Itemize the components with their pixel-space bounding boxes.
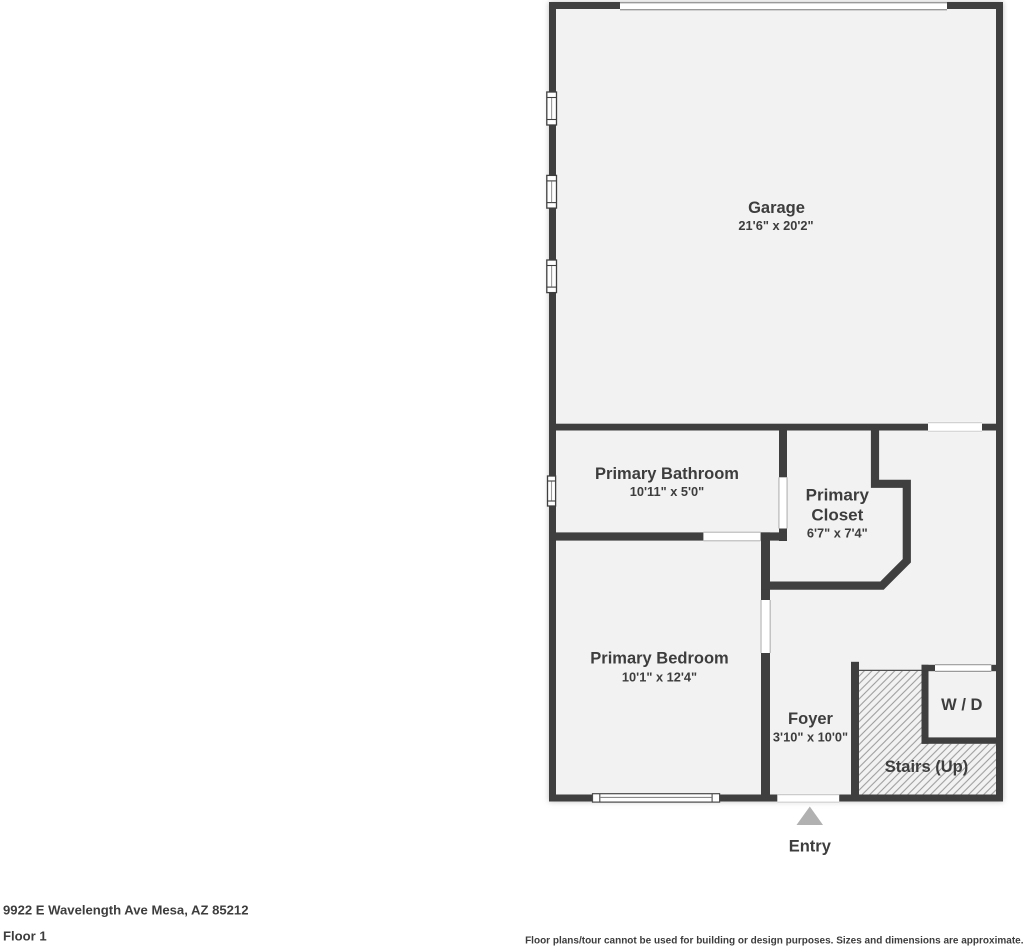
svg-text:Primary Bedroom: Primary Bedroom bbox=[590, 649, 728, 667]
svg-text:9922 E Wavelength Ave Mesa, AZ: 9922 E Wavelength Ave Mesa, AZ 85212 bbox=[3, 903, 249, 918]
svg-text:10'1" x 12'4": 10'1" x 12'4" bbox=[622, 670, 697, 685]
svg-text:21'6" x 20'2": 21'6" x 20'2" bbox=[738, 218, 813, 233]
svg-text:Closet: Closet bbox=[811, 506, 863, 525]
svg-text:W / D: W / D bbox=[941, 696, 982, 714]
svg-text:Foyer: Foyer bbox=[788, 710, 834, 728]
svg-text:Stairs (Up): Stairs (Up) bbox=[885, 758, 968, 776]
svg-text:10'11" x 5'0": 10'11" x 5'0" bbox=[630, 484, 704, 499]
svg-text:3'10" x 10'0": 3'10" x 10'0" bbox=[773, 730, 848, 745]
svg-text:Floor plans/tour cannot be use: Floor plans/tour cannot be used for buil… bbox=[525, 936, 1024, 947]
svg-text:Primary: Primary bbox=[806, 486, 870, 505]
svg-text:Floor 1: Floor 1 bbox=[3, 928, 47, 943]
svg-text:6'7" x 7'4": 6'7" x 7'4" bbox=[807, 526, 868, 541]
svg-text:Entry: Entry bbox=[789, 838, 832, 856]
svg-text:Primary Bathroom: Primary Bathroom bbox=[595, 465, 739, 483]
svg-text:Garage: Garage bbox=[748, 199, 805, 217]
